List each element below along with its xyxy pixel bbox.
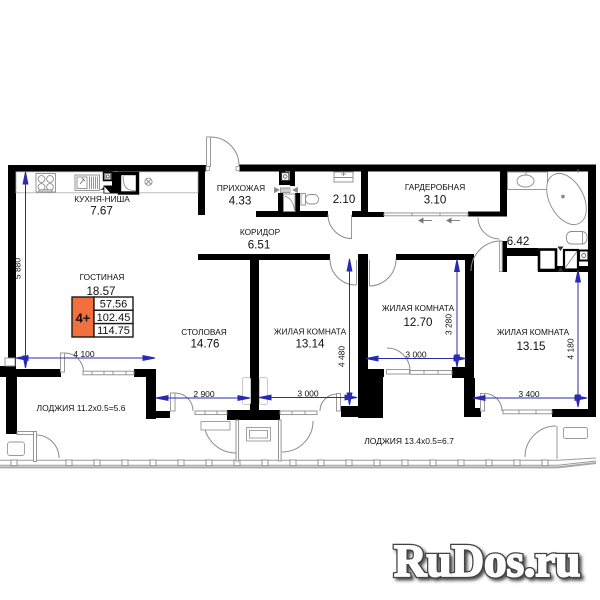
svg-text:ПРИХОЖАЯ: ПРИХОЖАЯ [217,183,265,193]
svg-text:4 100: 4 100 [73,349,95,359]
svg-text:3.10: 3.10 [424,194,447,207]
svg-text:ЖИЛАЯ КОМНАТА: ЖИЛАЯ КОМНАТА [382,303,455,313]
svg-text:СТОЛОВАЯ: СТОЛОВАЯ [181,327,226,337]
svg-text:18.57: 18.57 [86,285,115,298]
svg-text:6.51: 6.51 [248,239,271,252]
svg-text:RuDos.ru: RuDos.ru [394,536,580,586]
svg-text:КОРИДОР: КОРИДОР [240,227,281,237]
svg-text:2 900: 2 900 [193,389,215,399]
svg-text:114.75: 114.75 [97,325,130,337]
svg-text:ЖИЛАЯ КОМНАТА: ЖИЛАЯ КОМНАТА [274,327,347,337]
svg-text:4+: 4+ [76,311,91,326]
svg-text:КУХНЯ-НИША: КУХНЯ-НИША [74,194,130,204]
svg-text:57.56: 57.56 [100,299,128,311]
svg-text:102.45: 102.45 [97,312,131,324]
svg-text:2.10: 2.10 [333,193,356,206]
svg-text:3 000: 3 000 [297,389,319,399]
svg-text:14.76: 14.76 [190,338,219,351]
svg-text:3 400: 3 400 [518,389,540,399]
svg-text:ГОСТИНАЯ: ГОСТИНАЯ [80,272,125,282]
svg-text:ЛОДЖИЯ 11.2х0.5=5.6: ЛОДЖИЯ 11.2х0.5=5.6 [37,403,126,413]
svg-text:4 180: 4 180 [566,338,576,360]
svg-text:4 480: 4 480 [337,346,347,368]
svg-text:5 880: 5 880 [13,258,23,280]
svg-text:ЖИЛАЯ КОМНАТА: ЖИЛАЯ КОМНАТА [497,327,570,337]
svg-text:6.42: 6.42 [507,235,530,248]
svg-text:3 280: 3 280 [444,314,454,336]
svg-text:7.67: 7.67 [90,205,113,218]
svg-text:13.15: 13.15 [516,340,545,353]
svg-text:12.70: 12.70 [403,316,432,329]
svg-text:4.33: 4.33 [229,195,252,208]
svg-text:ЛОДЖИЯ 13.4х0.5=6.7: ЛОДЖИЯ 13.4х0.5=6.7 [364,436,454,446]
svg-text:3 000: 3 000 [405,350,427,360]
svg-text:ГАРДЕРОБНАЯ: ГАРДЕРОБНАЯ [405,182,465,192]
svg-text:13.14: 13.14 [295,338,325,351]
